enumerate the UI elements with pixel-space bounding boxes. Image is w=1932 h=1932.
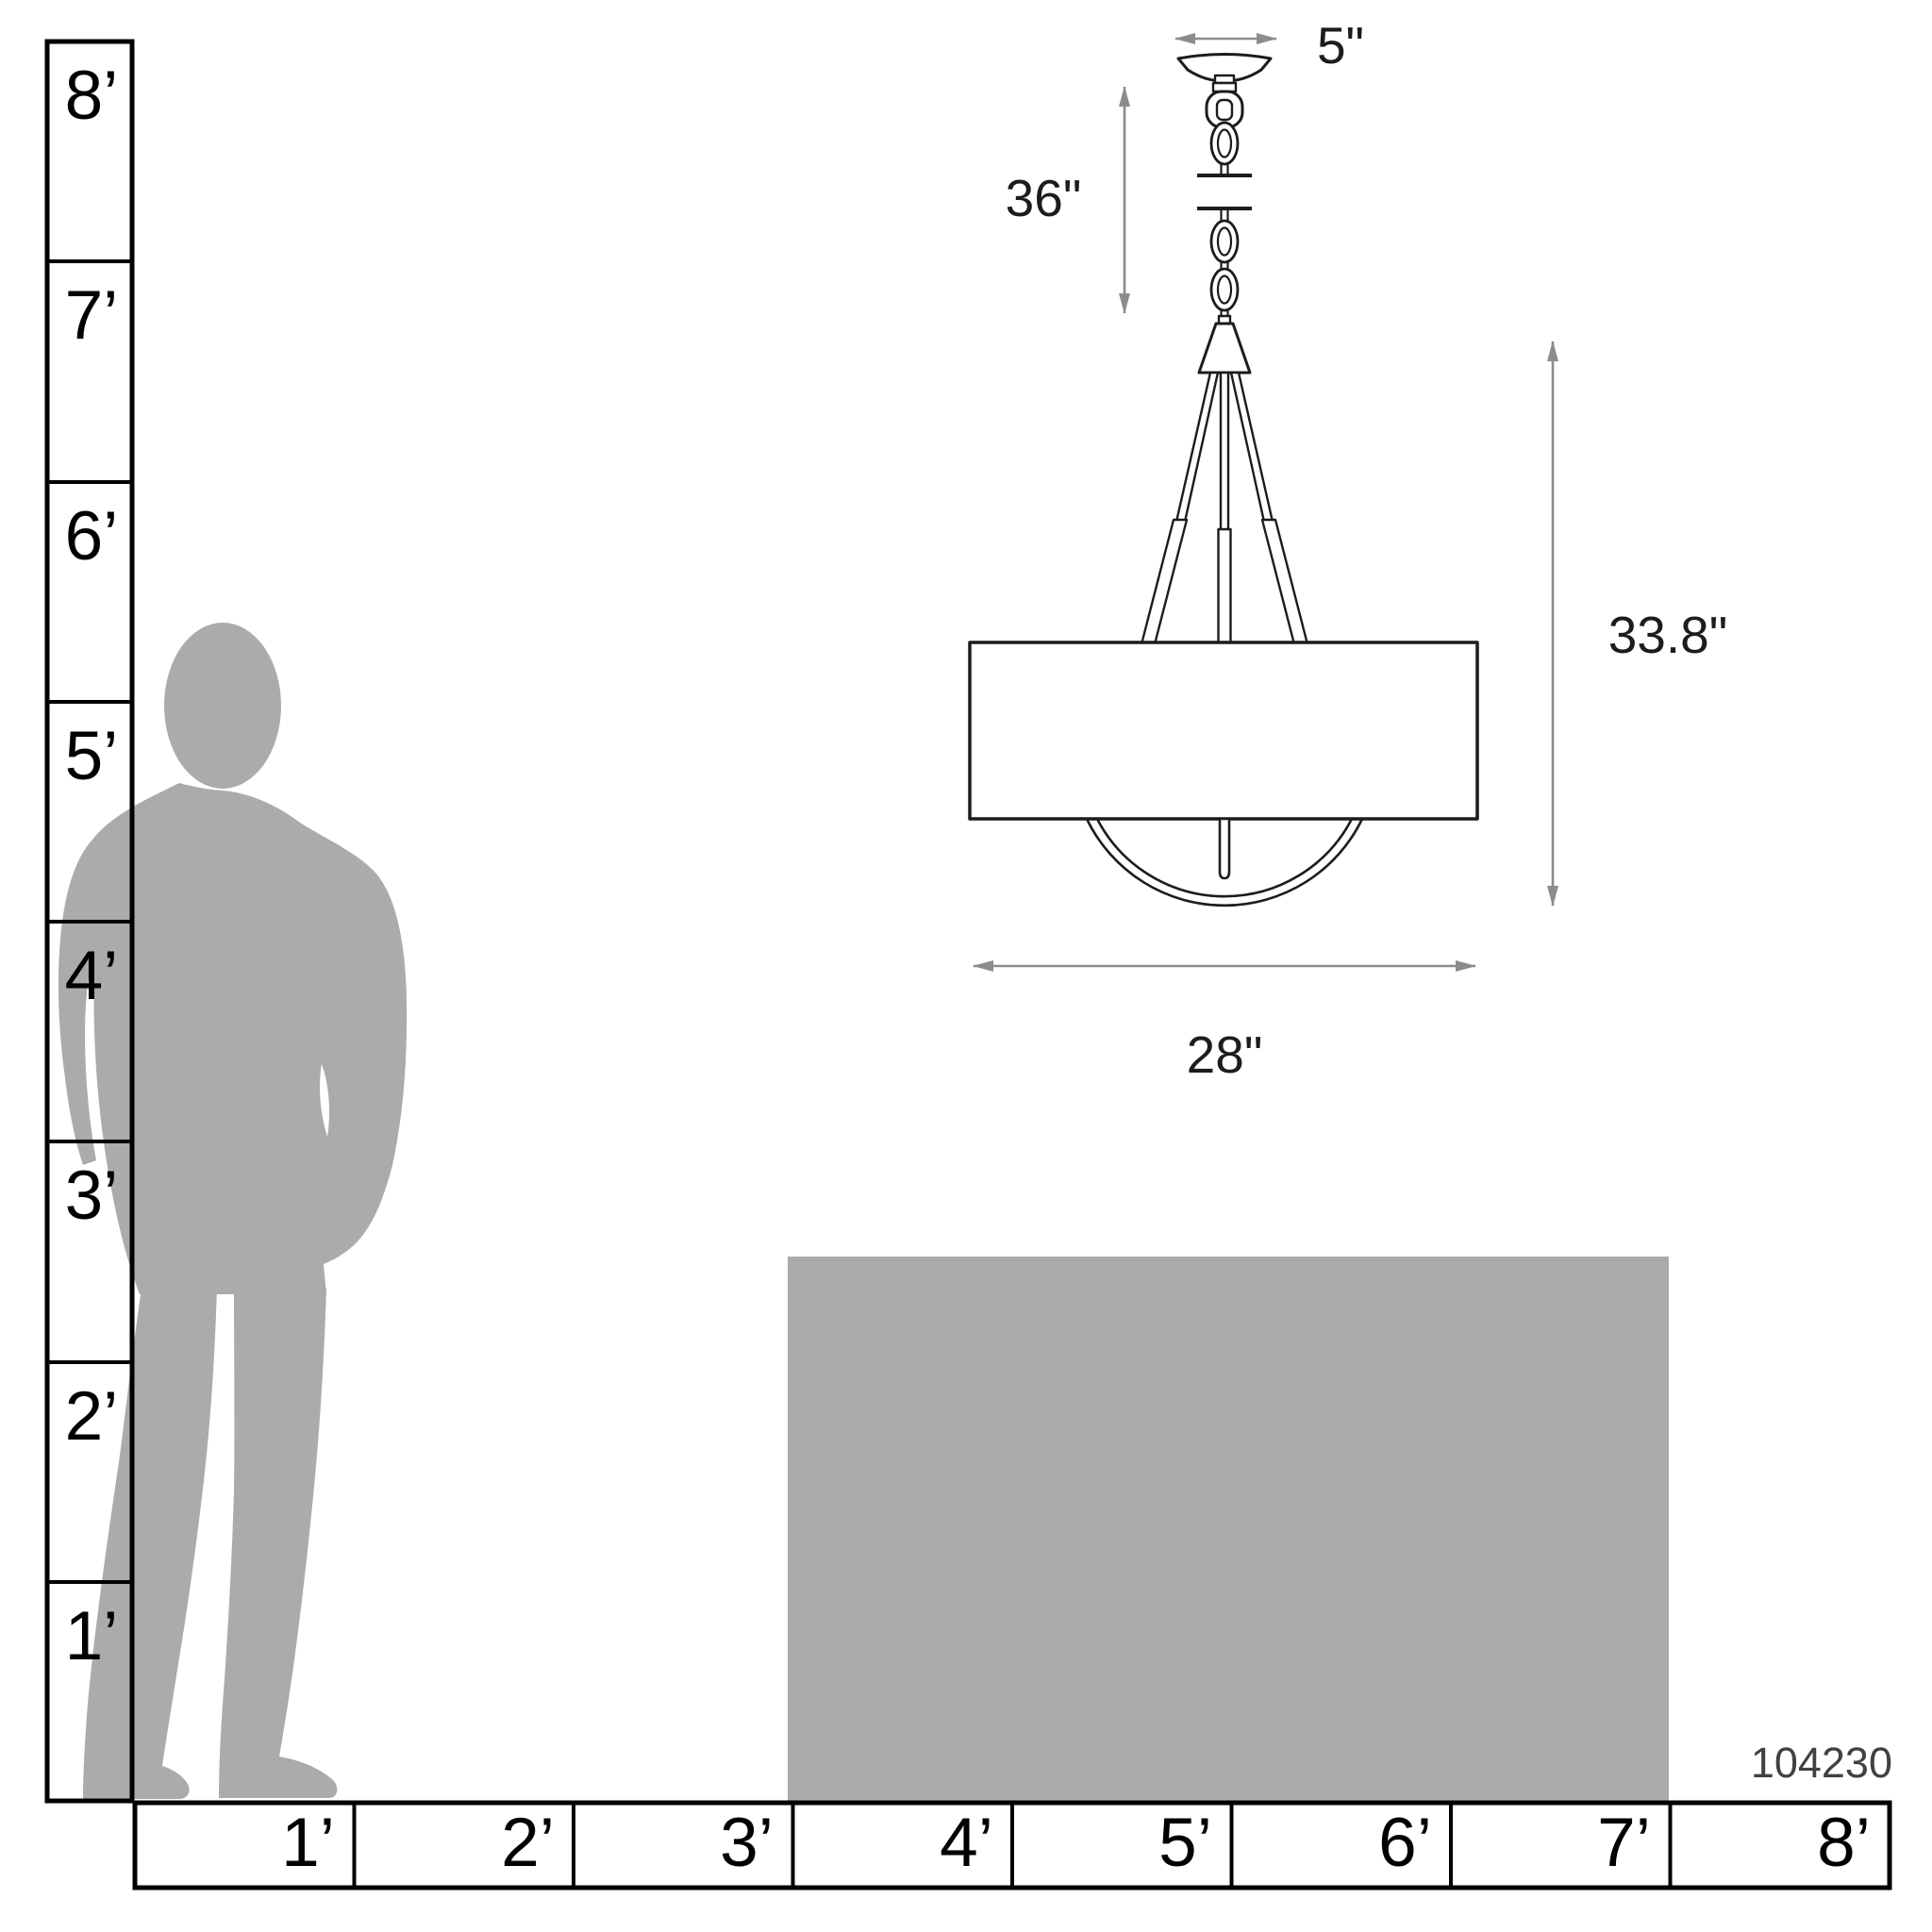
hang-length-label: 36" bbox=[1006, 169, 1082, 227]
person-left-leg bbox=[83, 1288, 217, 1799]
v-ruler-label-8ft: 8’ bbox=[65, 58, 119, 134]
h-ruler-label-3ft: 3’ bbox=[720, 1805, 774, 1881]
dimension-annotations: 5" 36" 33.8" 28" bbox=[974, 16, 1727, 1084]
product-number: 104230 bbox=[1751, 1739, 1892, 1787]
v-ruler-label-6ft: 6’ bbox=[65, 498, 119, 575]
v-ruler-label-3ft: 3’ bbox=[65, 1158, 119, 1234]
horizontal-ruler-labels: 1’ 2’ 3’ 4’ 5’ 6’ 7’ 8’ bbox=[281, 1805, 1871, 1881]
swivel-inner bbox=[1217, 100, 1232, 120]
h-ruler-label-6ft: 6’ bbox=[1378, 1805, 1432, 1881]
person-head bbox=[164, 623, 281, 789]
dim-hang-length: 36" bbox=[1006, 87, 1124, 313]
v-ruler-label-7ft: 7’ bbox=[65, 277, 119, 354]
canopy-width-label: 5" bbox=[1317, 16, 1364, 75]
fixture-height-label: 33.8" bbox=[1608, 606, 1728, 664]
h-ruler-label-5ft: 5’ bbox=[1158, 1805, 1212, 1881]
shade-width-label: 28" bbox=[1187, 1025, 1263, 1084]
chain-links bbox=[1211, 123, 1238, 310]
v-ruler-label-4ft: 4’ bbox=[65, 938, 119, 1014]
h-ruler-label-1ft: 1’ bbox=[281, 1805, 335, 1881]
drum-shade bbox=[970, 642, 1477, 819]
h-ruler-label-2ft: 2’ bbox=[501, 1805, 555, 1881]
center-stem bbox=[1220, 819, 1229, 878]
h-ruler-label-4ft: 4’ bbox=[940, 1805, 993, 1881]
pendant-size-diagram: 104230 bbox=[0, 0, 1932, 1932]
support-rods bbox=[1141, 373, 1307, 644]
horizontal-ruler: 1’ 2’ 3’ 4’ 5’ 6’ 7’ 8’ bbox=[135, 1803, 1890, 1888]
person-right-leg bbox=[219, 1288, 337, 1798]
finial-cone bbox=[1199, 324, 1250, 373]
dim-fixture-height: 33.8" bbox=[1553, 341, 1727, 906]
diagram-canvas: 104230 bbox=[0, 0, 1932, 1932]
v-ruler-label-5ft: 5’ bbox=[65, 718, 119, 794]
v-ruler-label-1ft: 1’ bbox=[65, 1598, 119, 1674]
v-ruler-label-2ft: 2’ bbox=[65, 1378, 119, 1455]
h-ruler-label-8ft: 8’ bbox=[1817, 1805, 1871, 1881]
table-block bbox=[788, 1257, 1669, 1805]
dim-shade-width: 28" bbox=[974, 966, 1475, 1084]
h-ruler-label-7ft: 7’ bbox=[1597, 1805, 1651, 1881]
